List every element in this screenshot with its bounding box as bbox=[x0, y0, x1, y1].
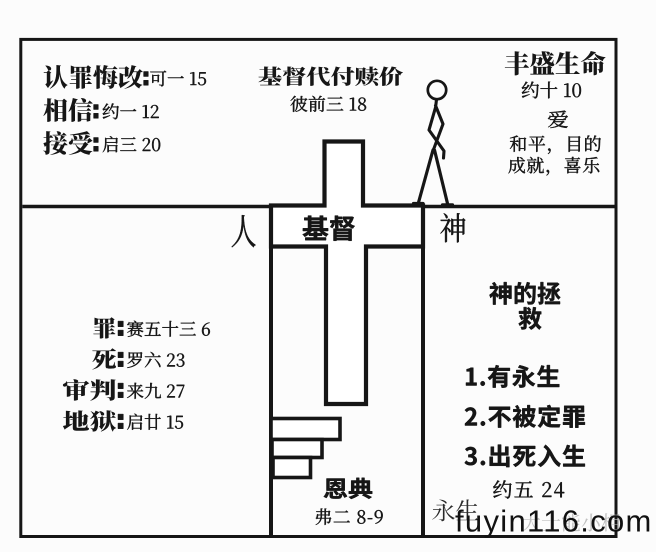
svg-text:fuyin116.com: fuyin116.com bbox=[455, 504, 653, 539]
